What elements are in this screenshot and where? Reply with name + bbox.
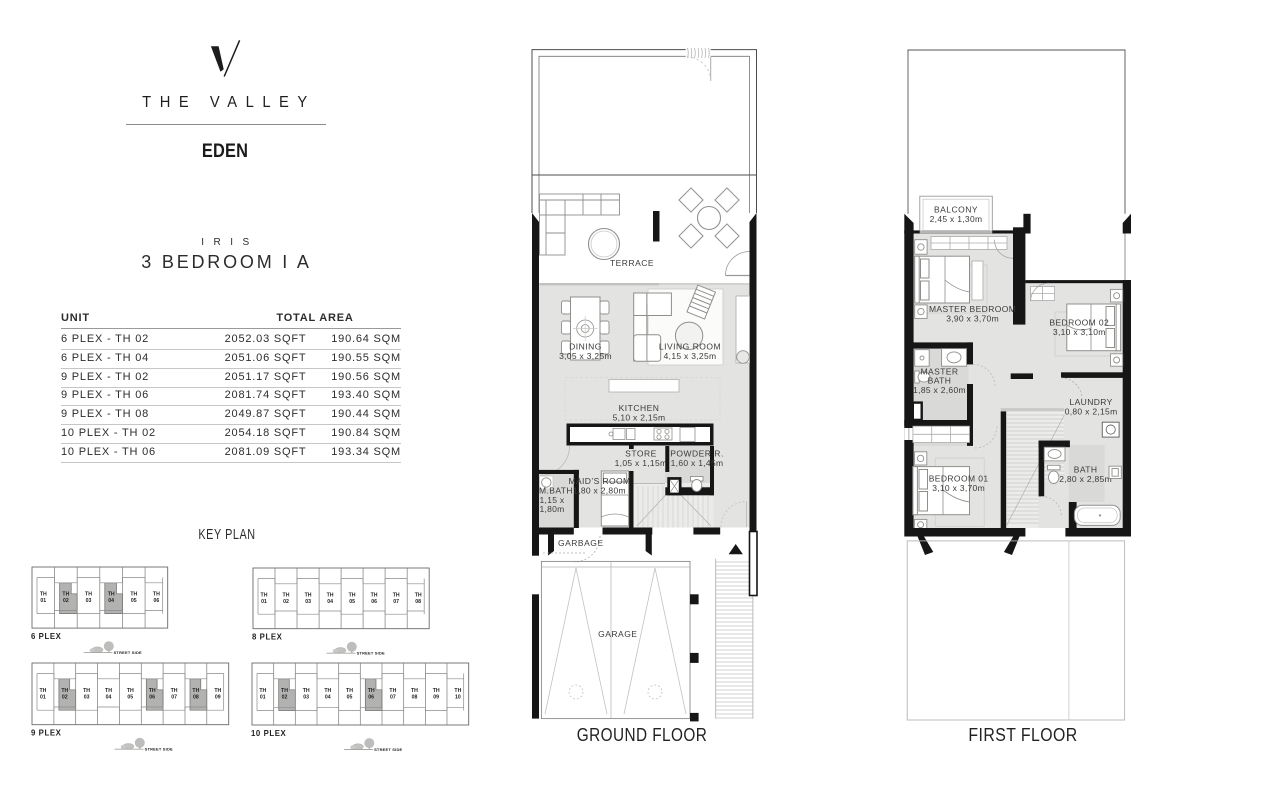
- svg-text:TH: TH: [433, 688, 440, 694]
- svg-text:05: 05: [347, 694, 353, 700]
- svg-text:TH: TH: [61, 688, 68, 694]
- svg-text:08: 08: [415, 598, 421, 604]
- svg-text:06: 06: [371, 598, 377, 604]
- svg-text:04: 04: [105, 694, 111, 700]
- svg-text:01: 01: [40, 694, 46, 700]
- svg-text:8 PLEX: 8 PLEX: [252, 632, 283, 641]
- svg-text:05: 05: [131, 598, 137, 604]
- svg-text:04: 04: [108, 598, 114, 604]
- svg-text:03: 03: [304, 694, 310, 700]
- svg-text:02: 02: [282, 694, 288, 700]
- svg-text:02: 02: [63, 598, 69, 604]
- svg-text:TH: TH: [392, 592, 399, 598]
- svg-text:TH: TH: [348, 592, 355, 598]
- svg-text:TH: TH: [303, 688, 310, 694]
- svg-text:TH: TH: [370, 592, 377, 598]
- svg-text:TH: TH: [346, 688, 353, 694]
- svg-text:POWDER R.: POWDER R.: [670, 449, 724, 459]
- svg-text:05: 05: [349, 598, 355, 604]
- svg-text:TH: TH: [127, 688, 134, 694]
- svg-text:DINING: DINING: [569, 342, 602, 352]
- svg-text:TH: TH: [153, 592, 160, 598]
- svg-text:1,80 x 2,80m: 1,80 x 2,80m: [573, 486, 626, 496]
- svg-text:TH: TH: [325, 688, 332, 694]
- svg-text:07: 07: [393, 598, 399, 604]
- svg-text:TH: TH: [260, 688, 267, 694]
- svg-text:TH: TH: [39, 688, 46, 694]
- svg-text:TH: TH: [304, 592, 311, 598]
- svg-text:03: 03: [85, 598, 91, 604]
- svg-text:4,15 x 3,25m: 4,15 x 3,25m: [664, 351, 717, 361]
- svg-text:MAID’S ROOM: MAID’S ROOM: [568, 476, 630, 486]
- svg-text:TH: TH: [107, 592, 114, 598]
- svg-text:KITCHEN: KITCHEN: [619, 403, 660, 413]
- svg-text:TH: TH: [411, 688, 418, 694]
- svg-text:TH: TH: [148, 688, 155, 694]
- svg-text:02: 02: [283, 598, 289, 604]
- svg-text:TH: TH: [170, 688, 177, 694]
- svg-text:6 PLEX: 6 PLEX: [31, 632, 62, 641]
- svg-text:3,05 x 3,25m: 3,05 x 3,25m: [559, 351, 612, 361]
- svg-text:GARBAGE: GARBAGE: [558, 538, 604, 548]
- svg-text:01: 01: [40, 598, 46, 604]
- svg-text:06: 06: [149, 694, 155, 700]
- svg-text:GARAGE: GARAGE: [598, 629, 637, 639]
- svg-text:TH: TH: [281, 688, 288, 694]
- svg-text:08: 08: [412, 694, 418, 700]
- svg-text:10: 10: [455, 694, 461, 700]
- svg-text:08: 08: [193, 694, 199, 700]
- svg-text:TH: TH: [414, 592, 421, 598]
- svg-text:BEDROOM 02: BEDROOM 02: [1049, 318, 1109, 328]
- svg-text:0,80 x 2,15m: 0,80 x 2,15m: [1065, 406, 1118, 416]
- svg-text:3,10 x 3,10m: 3,10 x 3,10m: [1053, 327, 1106, 337]
- svg-text:01: 01: [260, 694, 266, 700]
- svg-text:07: 07: [390, 694, 396, 700]
- svg-text:TH: TH: [455, 688, 462, 694]
- svg-text:1,60 x 1,45m: 1,60 x 1,45m: [671, 458, 724, 468]
- svg-text:2,45 x 1,30m: 2,45 x 1,30m: [930, 214, 983, 224]
- svg-text:STORE: STORE: [625, 449, 657, 459]
- svg-text:04: 04: [327, 598, 333, 604]
- svg-text:STREET SIDE: STREET SIDE: [113, 650, 141, 655]
- svg-text:06: 06: [369, 694, 375, 700]
- svg-text:TH: TH: [62, 592, 69, 598]
- svg-text:04: 04: [325, 694, 331, 700]
- svg-text:TH: TH: [105, 688, 112, 694]
- svg-text:STREET SIDE: STREET SIDE: [374, 747, 402, 752]
- svg-text:TH: TH: [83, 688, 90, 694]
- svg-text:3,10 x 3,70m: 3,10 x 3,70m: [932, 483, 985, 493]
- svg-text:LIVING ROOM: LIVING ROOM: [659, 342, 721, 352]
- svg-text:TH: TH: [40, 592, 47, 598]
- svg-text:TH: TH: [192, 688, 199, 694]
- svg-text:STREET SIDE: STREET SIDE: [356, 650, 384, 655]
- svg-text:TH: TH: [85, 592, 92, 598]
- svg-text:1,80m: 1,80m: [539, 504, 564, 514]
- svg-text:03: 03: [83, 694, 89, 700]
- svg-text:TH: TH: [368, 688, 375, 694]
- svg-text:02: 02: [62, 694, 68, 700]
- svg-text:BALCONY: BALCONY: [934, 205, 978, 215]
- svg-text:TH: TH: [214, 688, 221, 694]
- svg-text:09: 09: [215, 694, 221, 700]
- svg-text:07: 07: [171, 694, 177, 700]
- svg-text:10 PLEX: 10 PLEX: [251, 729, 287, 738]
- svg-text:STREET SIDE: STREET SIDE: [144, 746, 172, 751]
- svg-text:TH: TH: [390, 688, 397, 694]
- svg-text:3,90 x 3,70m: 3,90 x 3,70m: [946, 313, 999, 323]
- svg-text:9 PLEX: 9 PLEX: [31, 729, 62, 738]
- svg-text:1,05 x 1,15m: 1,05 x 1,15m: [615, 458, 668, 468]
- svg-text:05: 05: [127, 694, 133, 700]
- svg-text:TERRACE: TERRACE: [610, 258, 654, 268]
- svg-text:TH: TH: [326, 592, 333, 598]
- svg-text:03: 03: [305, 598, 311, 604]
- svg-text:TH: TH: [130, 592, 137, 598]
- svg-text:2,80 x 2,85m: 2,80 x 2,85m: [1059, 474, 1112, 484]
- svg-text:1,85 x 2,60m: 1,85 x 2,60m: [913, 385, 966, 395]
- svg-text:01: 01: [261, 598, 267, 604]
- svg-text:TH: TH: [282, 592, 289, 598]
- svg-text:06: 06: [153, 598, 159, 604]
- svg-text:5,10 x 2,15m: 5,10 x 2,15m: [613, 413, 666, 423]
- svg-text:09: 09: [434, 694, 440, 700]
- svg-text:TH: TH: [260, 592, 267, 598]
